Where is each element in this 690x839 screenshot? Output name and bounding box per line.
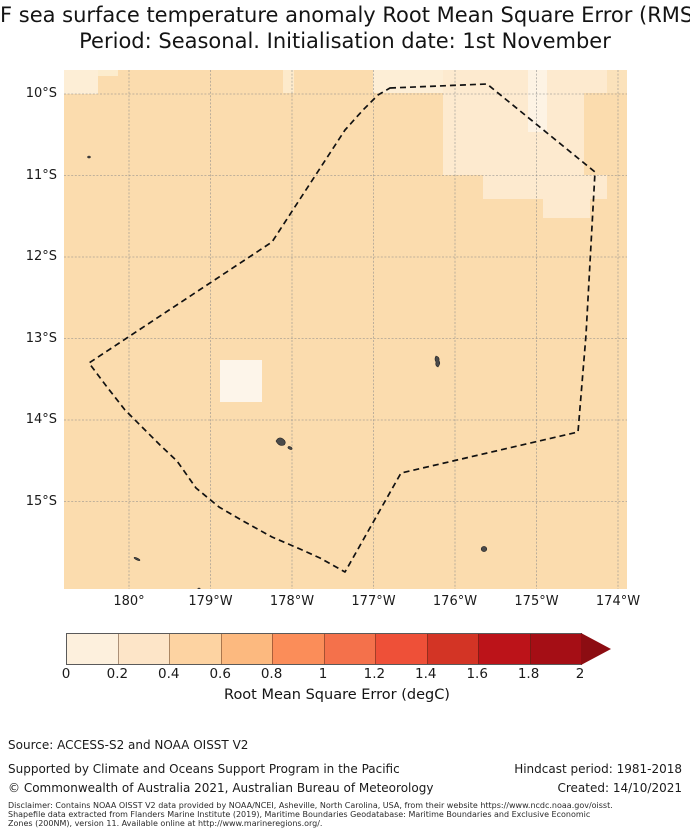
created-date-text: Created: 14/10/2021 xyxy=(557,781,682,795)
colorbar-label: Root Mean Square Error (degC) xyxy=(64,687,610,703)
rmse-cell-patch xyxy=(373,70,443,93)
x-axis-tick-label: 175°W xyxy=(497,594,577,609)
colorbar-segment xyxy=(221,634,273,664)
colorbar-extend-arrow xyxy=(581,633,611,665)
colorbar-tick-label: 1.6 xyxy=(455,666,499,682)
colorbar-segment xyxy=(530,634,582,664)
y-axis-tick-label: 11°S xyxy=(0,168,57,183)
colorbar-segment xyxy=(169,634,221,664)
supported-by-text: Supported by Climate and Oceans Support … xyxy=(8,762,400,776)
island xyxy=(88,156,91,158)
colorbar-segment xyxy=(375,634,427,664)
x-axis-tick-label: 176°W xyxy=(415,594,495,609)
colorbar-tick-label: 1.4 xyxy=(404,666,448,682)
x-axis-tick-label: 180° xyxy=(89,594,169,609)
disclaimer-line-3: Zones (200NM), version 11. Available onl… xyxy=(8,820,690,829)
colorbar-tick-label: 1 xyxy=(301,666,345,682)
colorbar-tick-label: 0.6 xyxy=(198,666,242,682)
rmse-cell-patch xyxy=(528,70,547,132)
y-axis-tick-label: 10°S xyxy=(0,86,57,101)
rmse-cell-patch xyxy=(483,175,607,199)
x-axis-tick-label: 179°W xyxy=(171,594,251,609)
colorbar-segment xyxy=(478,634,530,664)
map-plot-area xyxy=(64,70,627,589)
y-axis-tick-label: 13°S xyxy=(0,331,57,346)
colorbar-tick-label: 0.2 xyxy=(95,666,139,682)
hindcast-period-text: Hindcast period: 1981-2018 xyxy=(514,762,682,776)
chart-title: F sea surface temperature anomaly Root M… xyxy=(0,2,690,28)
island xyxy=(198,588,200,589)
colorbar-segment xyxy=(67,634,118,664)
colorbar-tick-label: 2 xyxy=(558,666,602,682)
colorbar xyxy=(66,633,582,665)
island xyxy=(481,546,487,551)
rmse-cell-patch xyxy=(607,70,627,93)
source-text: Source: ACCESS-S2 and NOAA OISST V2 xyxy=(8,738,248,752)
rmse-cell-patch xyxy=(64,70,98,94)
y-axis-tick-label: 15°S xyxy=(0,494,57,509)
colorbar-tick-label: 0 xyxy=(44,666,88,682)
colorbar-tick-label: 0.4 xyxy=(147,666,191,682)
colorbar-tick-label: 1.8 xyxy=(507,666,551,682)
chart-subtitle: Period: Seasonal. Initialisation date: 1… xyxy=(0,28,690,54)
colorbar-tick-label: 0.8 xyxy=(250,666,294,682)
disclaimer-line-2: Shapefile data extracted from Flanders M… xyxy=(8,811,690,820)
colorbar-segment xyxy=(324,634,376,664)
disclaimer-line-1: Disclaimer: Contains NOAA OISST V2 data … xyxy=(8,802,690,811)
figure-canvas: F sea surface temperature anomaly Root M… xyxy=(0,0,690,839)
colorbar-segment xyxy=(272,634,324,664)
rmse-cell-patch xyxy=(543,199,590,218)
y-axis-tick-label: 14°S xyxy=(0,412,57,427)
copyright-text: © Commonwealth of Australia 2021, Austra… xyxy=(8,781,433,795)
rmse-cell-patch xyxy=(443,70,607,93)
rmse-map xyxy=(64,70,627,589)
y-axis-tick-label: 12°S xyxy=(0,249,57,264)
rmse-cell-patch xyxy=(220,360,262,402)
x-axis-tick-label: 178°W xyxy=(252,594,332,609)
x-axis-tick-label: 177°W xyxy=(334,594,414,609)
rmse-cell-patch xyxy=(98,70,118,76)
x-axis-tick-label: 174°W xyxy=(578,594,658,609)
colorbar-tick-label: 1.2 xyxy=(352,666,396,682)
colorbar-segment xyxy=(118,634,170,664)
colorbar-segment xyxy=(427,634,479,664)
